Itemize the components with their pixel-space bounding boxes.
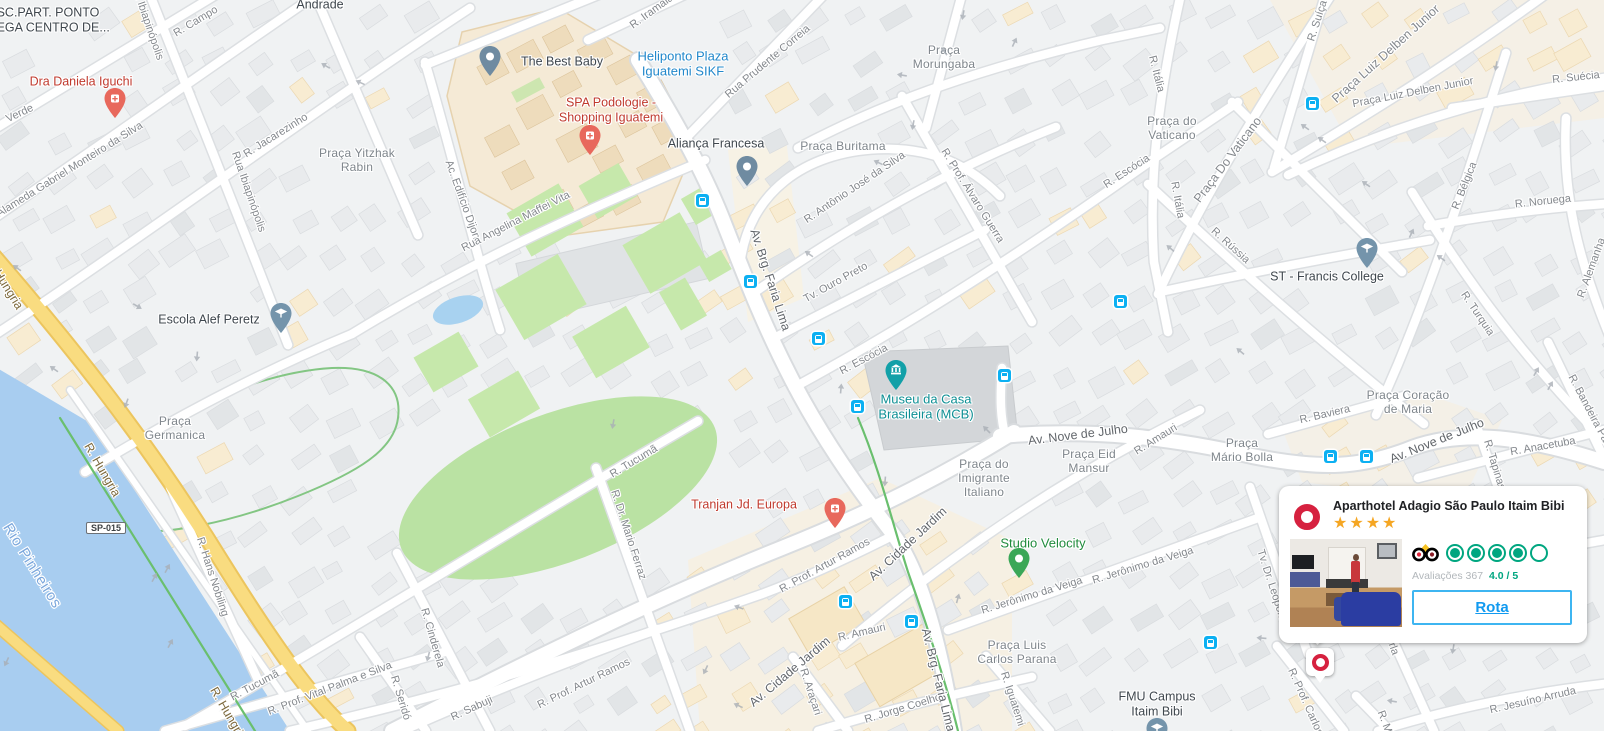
street-label: R. M bbox=[1374, 709, 1394, 731]
doctor-pin-icon[interactable] bbox=[104, 88, 126, 118]
street-label: R. Prof. Vital Palma e Silva bbox=[266, 659, 394, 718]
street-label: R. Campo bbox=[171, 4, 220, 41]
poi-pin-icon[interactable] bbox=[479, 46, 501, 76]
area-label: Praça YitzhakRabin bbox=[319, 146, 395, 174]
area-label: Praça doVaticano bbox=[1147, 114, 1197, 142]
transit-station-icon[interactable] bbox=[1204, 636, 1217, 649]
street-label: R. Amauri bbox=[837, 621, 887, 645]
street-label: Av. Cidade Jardim bbox=[747, 634, 834, 710]
transit-station-icon[interactable] bbox=[905, 615, 918, 628]
poi-label[interactable]: Museu da CasaBrasileira (MCB) bbox=[878, 392, 973, 423]
one-way-arrow-icon bbox=[1230, 348, 1244, 362]
street-label: R. Hans Nobiling bbox=[193, 536, 231, 619]
one-way-arrow-icon bbox=[5, 657, 17, 671]
one-way-arrow-icon bbox=[1401, 224, 1413, 238]
poi-label[interactable]: Aliança Francesa bbox=[668, 137, 765, 152]
street-label: R. Itália bbox=[1167, 181, 1186, 220]
hotel-result-pin-icon[interactable] bbox=[1306, 648, 1334, 676]
school-pin-icon[interactable] bbox=[270, 303, 292, 333]
street-label: R. Turquia bbox=[1457, 289, 1496, 338]
transit-station-icon[interactable] bbox=[812, 332, 825, 345]
one-way-arrow-icon bbox=[894, 75, 907, 85]
street-label: R. Bandeira Paulista bbox=[1565, 373, 1604, 468]
one-way-arrow-icon bbox=[799, 251, 813, 264]
one-way-arrow-icon bbox=[1295, 124, 1309, 137]
transit-station-icon[interactable] bbox=[998, 369, 1011, 382]
street-label: Tv. Ouro Preto bbox=[802, 260, 871, 306]
street-label: R. Jacarezinho bbox=[241, 111, 310, 161]
map-viewport[interactable]: R. CampoVerdeAlameda Gabriel Monteiro da… bbox=[0, 0, 1604, 731]
street-label: R. Prof. Artur Ramos bbox=[777, 536, 872, 597]
spa-pin-icon[interactable] bbox=[579, 125, 601, 155]
bubble-filled-icon bbox=[1467, 544, 1485, 562]
street-label: R. Jorge Coelho bbox=[863, 691, 943, 727]
water-label: Rio Pinheiros bbox=[0, 520, 65, 612]
transit-station-icon[interactable] bbox=[744, 275, 757, 288]
area-label: Praça doImigranteItaliano bbox=[958, 457, 1010, 499]
street-label: Av. Nove de Julho bbox=[1388, 415, 1487, 466]
street-label: Av. Cidade Jardim bbox=[866, 504, 950, 584]
area-label: Praça Buritama bbox=[800, 139, 886, 153]
one-way-arrow-icon bbox=[976, 426, 990, 440]
street-label: R. Prof. Artur Ramos bbox=[536, 656, 633, 712]
street-label: rla bbox=[1385, 641, 1401, 657]
adagio-ring-icon bbox=[1312, 654, 1329, 671]
hotel-info-card[interactable]: Aparthotel Adagio São Paulo Itaim Bibi ★… bbox=[1279, 486, 1587, 643]
poi-label[interactable]: The Best Baby bbox=[521, 55, 603, 70]
one-way-arrow-icon bbox=[729, 704, 743, 716]
street-label: R. Araçari bbox=[796, 667, 823, 717]
street-label: R. Suécia bbox=[1552, 69, 1601, 87]
transit-station-icon[interactable] bbox=[1306, 97, 1319, 110]
street-label: R. Jesuíno Arruda bbox=[1489, 685, 1578, 717]
one-way-arrow-icon bbox=[197, 351, 206, 364]
bubble-empty-icon bbox=[1530, 544, 1548, 562]
street-label: Alameda Gabriel Monteiro da Silva bbox=[0, 119, 146, 220]
area-label: Praça Coraçãode Maria bbox=[1367, 388, 1450, 416]
one-way-arrow-icon bbox=[160, 634, 173, 648]
one-way-arrow-icon bbox=[133, 296, 147, 309]
street-label: R. Jerônimo da Veiga bbox=[980, 574, 1084, 617]
one-way-arrow-icon bbox=[613, 418, 623, 431]
gym-pin-icon[interactable] bbox=[1008, 548, 1030, 578]
street-label: R. Alemanha bbox=[1575, 236, 1604, 300]
street-label: R. Dr. Mario Ferraz bbox=[607, 489, 648, 582]
street-label: R. Jerônimo da Veiga bbox=[1091, 544, 1195, 587]
street-label: Verde bbox=[4, 102, 36, 126]
star-rating: ★★★★ bbox=[1333, 516, 1565, 532]
street-label: R. Bélgica bbox=[1450, 160, 1481, 211]
street-label: R. Seridó bbox=[387, 674, 413, 722]
one-way-arrow-icon bbox=[1431, 255, 1445, 268]
area-label: PraçaGermanica bbox=[145, 414, 206, 442]
one-way-arrow-icon bbox=[1526, 362, 1539, 376]
street-label: R. Tucumã bbox=[608, 443, 660, 482]
one-way-arrow-icon bbox=[913, 119, 923, 132]
tripadvisor-owl-icon bbox=[1412, 542, 1439, 563]
street-label: Rua Ibiapinópolis bbox=[126, 0, 166, 62]
poi-pin-icon[interactable] bbox=[736, 156, 758, 186]
transit-station-icon[interactable] bbox=[839, 595, 852, 608]
one-way-arrow-icon bbox=[157, 559, 170, 573]
street-label: R. Escócia bbox=[1101, 152, 1152, 192]
street-label: R. Suíça bbox=[1305, 0, 1330, 43]
street-label: R. Rússia bbox=[1208, 225, 1252, 267]
poi-label[interactable]: SPA Podologie -Shopping Iguatemi bbox=[559, 95, 663, 125]
one-way-arrow-icon bbox=[44, 366, 58, 379]
street-label: Praça Luiz Delben Junior bbox=[1351, 75, 1474, 111]
street-label: Rua Prudente Correia bbox=[723, 23, 813, 102]
adagio-ring-logo bbox=[1294, 504, 1320, 530]
one-way-arrow-icon bbox=[1540, 376, 1553, 390]
area-label: Praça EidMansur bbox=[1062, 447, 1116, 475]
one-way-arrow-icon bbox=[1356, 181, 1370, 194]
museum-pin-icon[interactable] bbox=[885, 360, 907, 390]
street-label: R. Noruega bbox=[1514, 193, 1571, 212]
street-label: Ac. Edifício Dijon bbox=[442, 159, 483, 242]
one-way-arrow-icon bbox=[963, 9, 973, 22]
one-way-arrow-icon bbox=[948, 590, 959, 604]
one-way-arrow-icon bbox=[1160, 245, 1174, 259]
street-label: R. Escócia bbox=[838, 342, 891, 378]
one-way-arrow-icon bbox=[1004, 33, 1016, 47]
one-way-arrow-icon bbox=[351, 81, 365, 93]
street-label: R. Anacetuba bbox=[1509, 435, 1576, 459]
street-label: R. Itália bbox=[1145, 54, 1167, 93]
transit-station-icon[interactable] bbox=[1324, 450, 1337, 463]
route-button[interactable]: Rota bbox=[1412, 590, 1572, 625]
street-label: R. Baviera bbox=[1299, 403, 1352, 427]
street-label: Av. Nove de Julho bbox=[1027, 422, 1128, 449]
street-label: Av. Brg. Faria Lima bbox=[918, 627, 958, 731]
street-label: R. Tapinas bbox=[1480, 438, 1508, 491]
street-label: R. Iguatemi bbox=[997, 670, 1027, 728]
street-label: Praça Do Vaticano bbox=[1191, 114, 1265, 205]
one-way-arrow-icon bbox=[1453, 643, 1463, 656]
hotel-title: Aparthotel Adagio São Paulo Itaim Bibi bbox=[1333, 499, 1565, 513]
reviews-line: Avaliações 367 4.0 / 5 bbox=[1412, 570, 1575, 582]
transit-station-icon[interactable] bbox=[1360, 450, 1373, 463]
card-header: Aparthotel Adagio São Paulo Itaim Bibi ★… bbox=[1279, 486, 1587, 532]
route-shield: SP-015 bbox=[86, 522, 126, 534]
school-pin-icon[interactable] bbox=[1356, 238, 1378, 268]
transit-station-icon[interactable] bbox=[1114, 295, 1127, 308]
one-way-arrow-icon bbox=[730, 606, 744, 618]
rating-score: 4.0 / 5 bbox=[1489, 570, 1518, 582]
area-label: PraçaMário Bolla bbox=[1211, 436, 1273, 464]
one-way-arrow-icon bbox=[316, 64, 330, 77]
transit-station-icon[interactable] bbox=[696, 194, 709, 207]
street-label: R. Tucumã bbox=[228, 668, 281, 704]
one-way-arrow-icon bbox=[704, 665, 716, 679]
clinic-pin-icon[interactable] bbox=[824, 498, 846, 528]
street-label: R. Sabuji bbox=[449, 694, 495, 725]
bubble-filled-icon bbox=[1488, 544, 1506, 562]
hotel-photo[interactable] bbox=[1290, 539, 1402, 627]
school-pin-icon[interactable] bbox=[1146, 718, 1168, 731]
bubble-filled-icon bbox=[1509, 544, 1527, 562]
area-label: Praça LuisCarlos Parana bbox=[977, 638, 1056, 666]
street-label: Rua Ibiapinópolis bbox=[228, 150, 268, 234]
poi-label[interactable]: FMU CampusItaim Bibi bbox=[1118, 689, 1195, 719]
poi-label[interactable]: SC.PART. PONTOMEGA CENTRO DE... bbox=[0, 5, 110, 35]
bubble-filled-icon bbox=[1446, 544, 1464, 562]
poi-label[interactable]: Andrade bbox=[296, 0, 343, 12]
poi-label[interactable]: Escola Alef Peretz bbox=[158, 313, 259, 328]
poi-label[interactable]: Heliponto PlazaIguatemi SIKF bbox=[637, 49, 728, 80]
one-way-arrow-icon bbox=[1255, 638, 1268, 647]
one-way-arrow-icon bbox=[144, 568, 157, 582]
poi-label[interactable]: Tranjan Jd. Europa bbox=[691, 498, 797, 513]
one-way-arrow-icon bbox=[831, 382, 840, 395]
street-label: R. Prof. Álvaro Guerra bbox=[938, 146, 1007, 245]
poi-label[interactable]: ST - Francis College bbox=[1270, 270, 1384, 285]
street-label: R. Amauri bbox=[1132, 422, 1180, 459]
tripadvisor-bubble-rating bbox=[1446, 544, 1548, 562]
one-way-arrow-icon bbox=[1312, 137, 1326, 150]
one-way-arrow-icon bbox=[885, 476, 894, 489]
street-label: R. Hungria bbox=[81, 440, 124, 499]
street-label: R. Iramaia bbox=[628, 0, 677, 32]
one-way-arrow-icon bbox=[1496, 60, 1506, 73]
transit-station-icon[interactable] bbox=[851, 400, 864, 413]
one-way-arrow-icon bbox=[125, 398, 137, 412]
street-label: R. Antônio José da Silva bbox=[802, 149, 908, 226]
